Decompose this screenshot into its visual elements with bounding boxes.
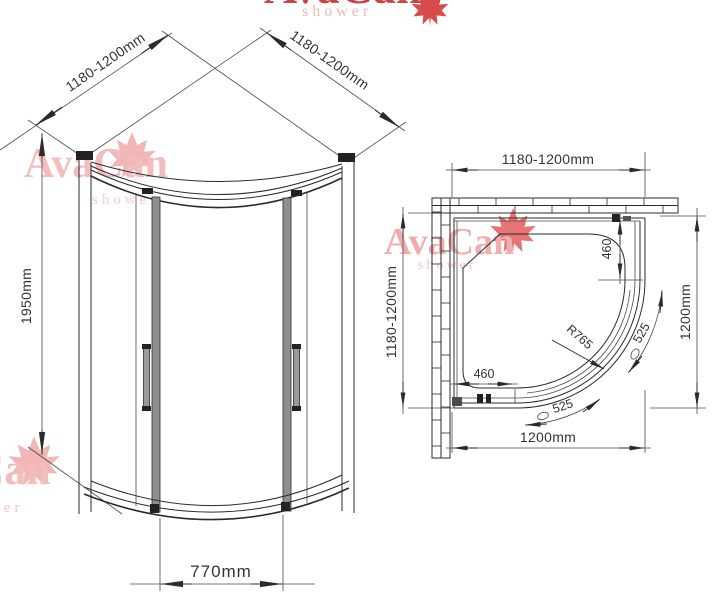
plan-straight-right-label: 460 [600, 239, 614, 260]
door-stop [477, 394, 483, 403]
plan-width-bottom-label: 1200mm [520, 429, 576, 445]
shower-enclosure-technical-drawing: AvaCan shower AvaCan shower AvaCan showe… [0, 0, 719, 600]
door-stop [612, 214, 620, 222]
door-stop [623, 216, 631, 221]
iso-door-opening-label: 770mm [190, 562, 252, 581]
plan-depth-right-label: 1200mm [677, 284, 693, 340]
door-handle-left [142, 344, 151, 411]
plan-depth-left-label: 1180-1200mm [383, 266, 399, 359]
plan-arc-upper-label: 525 [630, 320, 653, 345]
door-roller [291, 190, 302, 196]
post-cap [338, 153, 355, 162]
door-stile-left [152, 197, 160, 512]
plan-view: 1180-1200mm 1180-1200mm 1200mm 1200mm [383, 151, 706, 458]
door-roller [142, 188, 153, 194]
arc-length-symbol [537, 411, 550, 421]
plan-width-top-label: 1180-1200mm [502, 151, 595, 167]
iso-width-left-label: 1180-1200mm [63, 29, 148, 95]
iso-view: 1180-1200mm 1180-1200mm 1950mm [0, 27, 406, 591]
blueprint-svg: 1180-1200mm 1180-1200mm 1950mm [0, 0, 719, 600]
door-guide [150, 504, 159, 513]
plan-radius-label: R765 [564, 322, 596, 352]
door-stop [486, 394, 491, 403]
iso-height-label: 1950mm [18, 268, 34, 324]
door-handle-right [292, 344, 301, 411]
track-bracket [452, 397, 462, 406]
iso-width-right-label: 1180-1200mm [287, 27, 372, 93]
door-guide [281, 502, 290, 511]
post-cap [76, 151, 93, 160]
door-stile-right [283, 198, 291, 511]
plan-straight-bottom-label: 460 [474, 367, 495, 381]
plan-arc-lower-label: 525 [551, 396, 575, 416]
